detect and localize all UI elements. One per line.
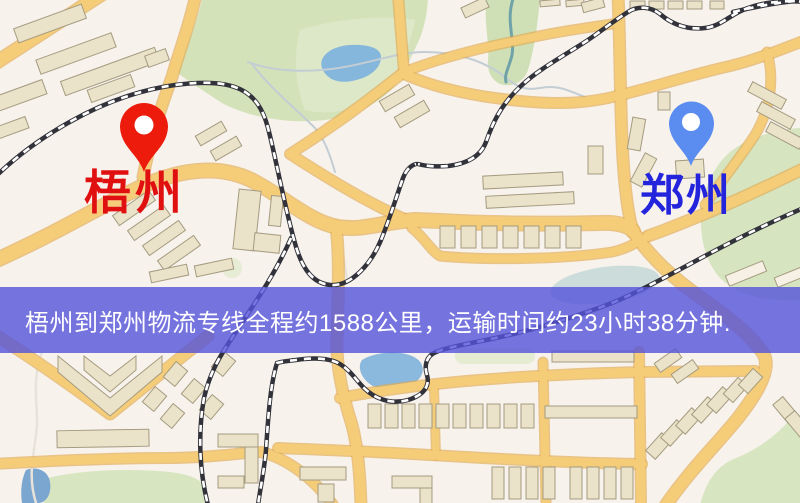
route-info-banner: 梧州到郑州物流专线全程约1588公里，运输时间约23小时38分钟. (0, 287, 800, 353)
origin-city-label: 梧州 (84, 171, 186, 218)
map-canvas (0, 0, 800, 503)
route-info-text: 梧州到郑州物流专线全程约1588公里，运输时间约23小时38分钟. (25, 303, 731, 338)
destination-city-label: 郑州 (640, 174, 732, 218)
logistics-route-map: 梧州 郑州 梧州到郑州物流专线全程约1588公里，运输时间约23小时38分钟. (0, 0, 800, 503)
